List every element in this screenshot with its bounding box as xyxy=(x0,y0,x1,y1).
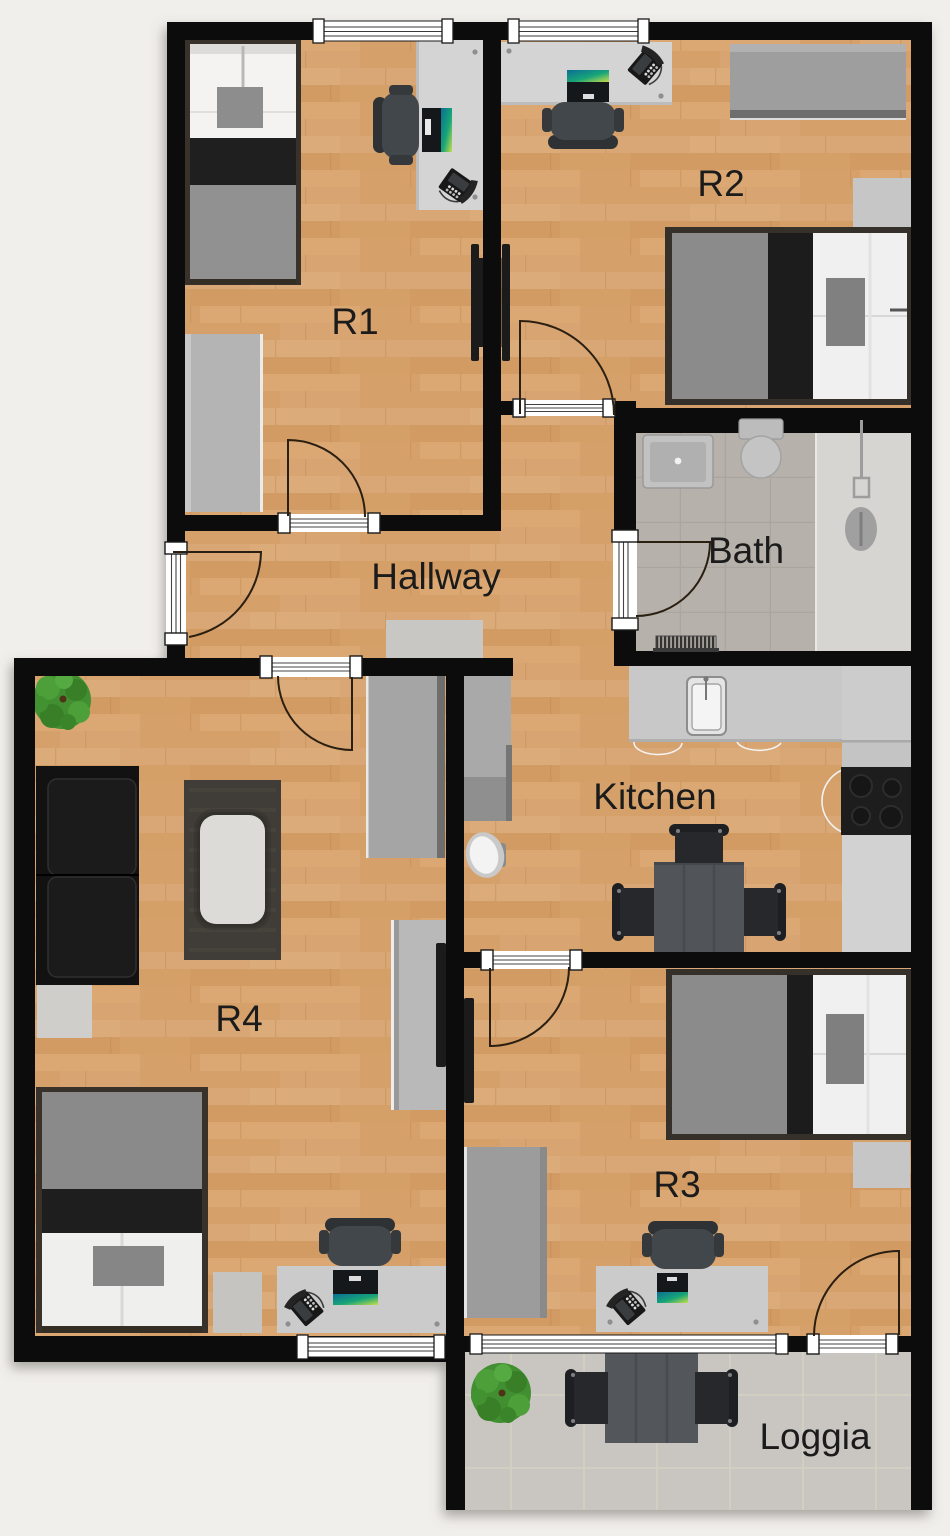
svg-text:Bath: Bath xyxy=(708,530,784,571)
svg-text:R4: R4 xyxy=(215,998,262,1039)
svg-text:Hallway: Hallway xyxy=(371,556,501,597)
svg-text:Kitchen: Kitchen xyxy=(593,776,716,817)
svg-text:Loggia: Loggia xyxy=(759,1416,871,1457)
svg-text:R2: R2 xyxy=(697,163,744,204)
svg-text:R1: R1 xyxy=(331,301,378,342)
svg-text:R3: R3 xyxy=(653,1164,700,1205)
